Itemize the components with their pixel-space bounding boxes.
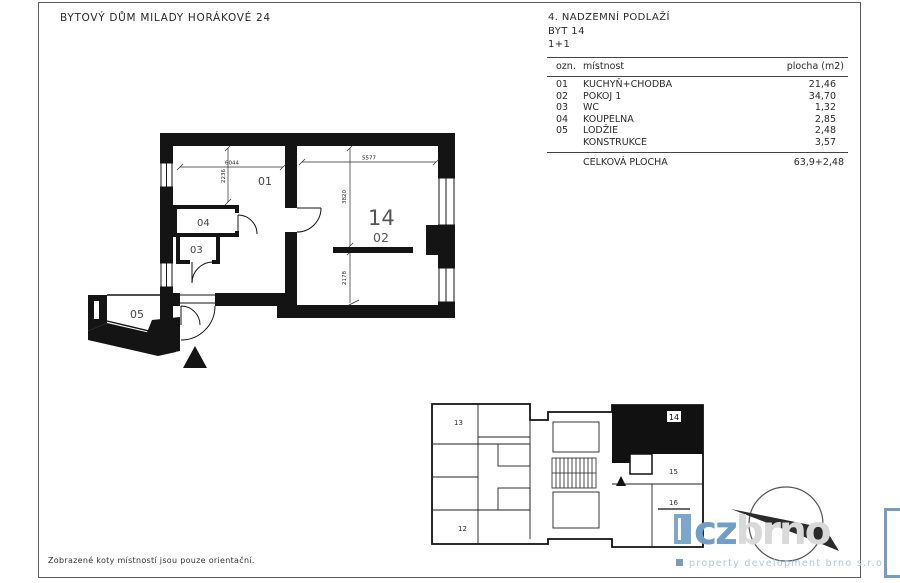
room-02-label: 02 xyxy=(373,230,389,245)
table-row: 03 WC 1,32 xyxy=(547,102,848,114)
apartment-number-label: 14 xyxy=(368,206,395,230)
row-room: KUCHYŇ+CHODBA xyxy=(583,79,756,91)
overview-apt15-label: 15 xyxy=(669,468,678,476)
logo-cz: cz xyxy=(694,509,736,554)
row-room: POKOJ 1 xyxy=(583,91,756,103)
disposition-label: 1+1 xyxy=(548,38,670,52)
row-ozn: 04 xyxy=(547,114,583,126)
row-room: WC xyxy=(583,102,756,114)
logo-mark-icon xyxy=(674,514,691,544)
overview-apt12-label: 12 xyxy=(458,525,467,533)
row-ozn xyxy=(547,137,583,149)
company-logo: czbrno xyxy=(674,514,830,548)
room-04-label: 04 xyxy=(197,218,210,229)
edge-logo-mark-icon xyxy=(884,508,900,578)
table-header: ozn. místnost plocha (m2) xyxy=(547,57,848,77)
row-area: 21,46 xyxy=(756,79,848,91)
overview-apt14-label: 14 xyxy=(669,413,679,422)
dim-room02-depth-lower: 2178 xyxy=(342,271,348,285)
logo-brno: brno xyxy=(736,509,830,554)
dim-room01-width: 6044 xyxy=(225,161,239,167)
room-03-label: 03 xyxy=(190,245,203,256)
dim-room02-depth-upper: 3820 xyxy=(342,190,348,204)
apartment-floorplan: 6044 2236 5577 3820 2178 01 14 02 04 03 … xyxy=(80,125,500,385)
row-area: 1,32 xyxy=(756,102,848,114)
dim-room02-width: 5577 xyxy=(362,156,376,162)
overview-apt13-label: 13 xyxy=(454,419,463,427)
room02-counter xyxy=(333,247,413,253)
row-ozn: 02 xyxy=(547,91,583,103)
col-area: plocha (m2) xyxy=(756,61,848,72)
row-room: KONSTRUKCE xyxy=(583,137,756,149)
overview-apt16-label: 16 xyxy=(669,499,678,507)
table-row: 04 KOUPELNA 2,85 xyxy=(547,114,848,126)
col-ozn: ozn. xyxy=(547,61,583,72)
unit-label: BYT 14 xyxy=(548,25,670,39)
dimension-labels: 6044 2236 5577 3820 2178 xyxy=(221,156,376,286)
row-area: 34,70 xyxy=(756,91,848,103)
table-row: KONSTRUKCE 3,57 xyxy=(547,137,848,149)
room-area-table: ozn. místnost plocha (m2) 01 KUCHYŇ+CHOD… xyxy=(547,57,848,173)
row-room: KOUPELNA xyxy=(583,114,756,126)
dim-room01-depth: 2236 xyxy=(221,169,227,183)
col-room: místnost xyxy=(583,61,756,72)
row-ozn: 05 xyxy=(547,125,583,137)
row-ozn: 03 xyxy=(547,102,583,114)
room-05-label: 05 xyxy=(130,308,144,321)
row-area: 2,48 xyxy=(756,125,848,137)
building-title: BYTOVÝ DŮM MILADY HORÁKOVÉ 24 xyxy=(60,12,271,24)
total-value: 63,9+2,48 xyxy=(756,157,848,168)
tagline-bullet-icon xyxy=(676,559,683,566)
floor-label: 4. NADZEMNÍ PODLAŽÍ xyxy=(548,11,670,25)
row-area: 2,85 xyxy=(756,114,848,126)
table-row: 02 POKOJ 1 34,70 xyxy=(547,91,848,103)
table-total-row: CELKOVÁ PLOCHA 63,9+2,48 xyxy=(547,153,848,173)
room-01-label: 01 xyxy=(258,175,272,188)
walls xyxy=(88,133,455,356)
logo-tagline: property development brno s.r.o. xyxy=(676,558,887,569)
row-area: 3,57 xyxy=(756,137,848,149)
total-label: CELKOVÁ PLOCHA xyxy=(583,157,756,168)
floorplan-sheet: BYTOVÝ DŮM MILADY HORÁKOVÉ 24 4. NADZEMN… xyxy=(0,0,900,583)
footer-note: Zobrazené koty místností jsou pouze orie… xyxy=(48,556,255,565)
apartment-header: 4. NADZEMNÍ PODLAŽÍ BYT 14 1+1 xyxy=(548,11,670,52)
row-room: LODŽIE xyxy=(583,125,756,137)
table-row: 05 LODŽIE 2,48 xyxy=(547,125,848,137)
entrance-marker-triangle xyxy=(183,346,207,368)
row-ozn: 01 xyxy=(547,79,583,91)
table-row: 01 KUCHYŇ+CHODBA 21,46 xyxy=(547,79,848,91)
